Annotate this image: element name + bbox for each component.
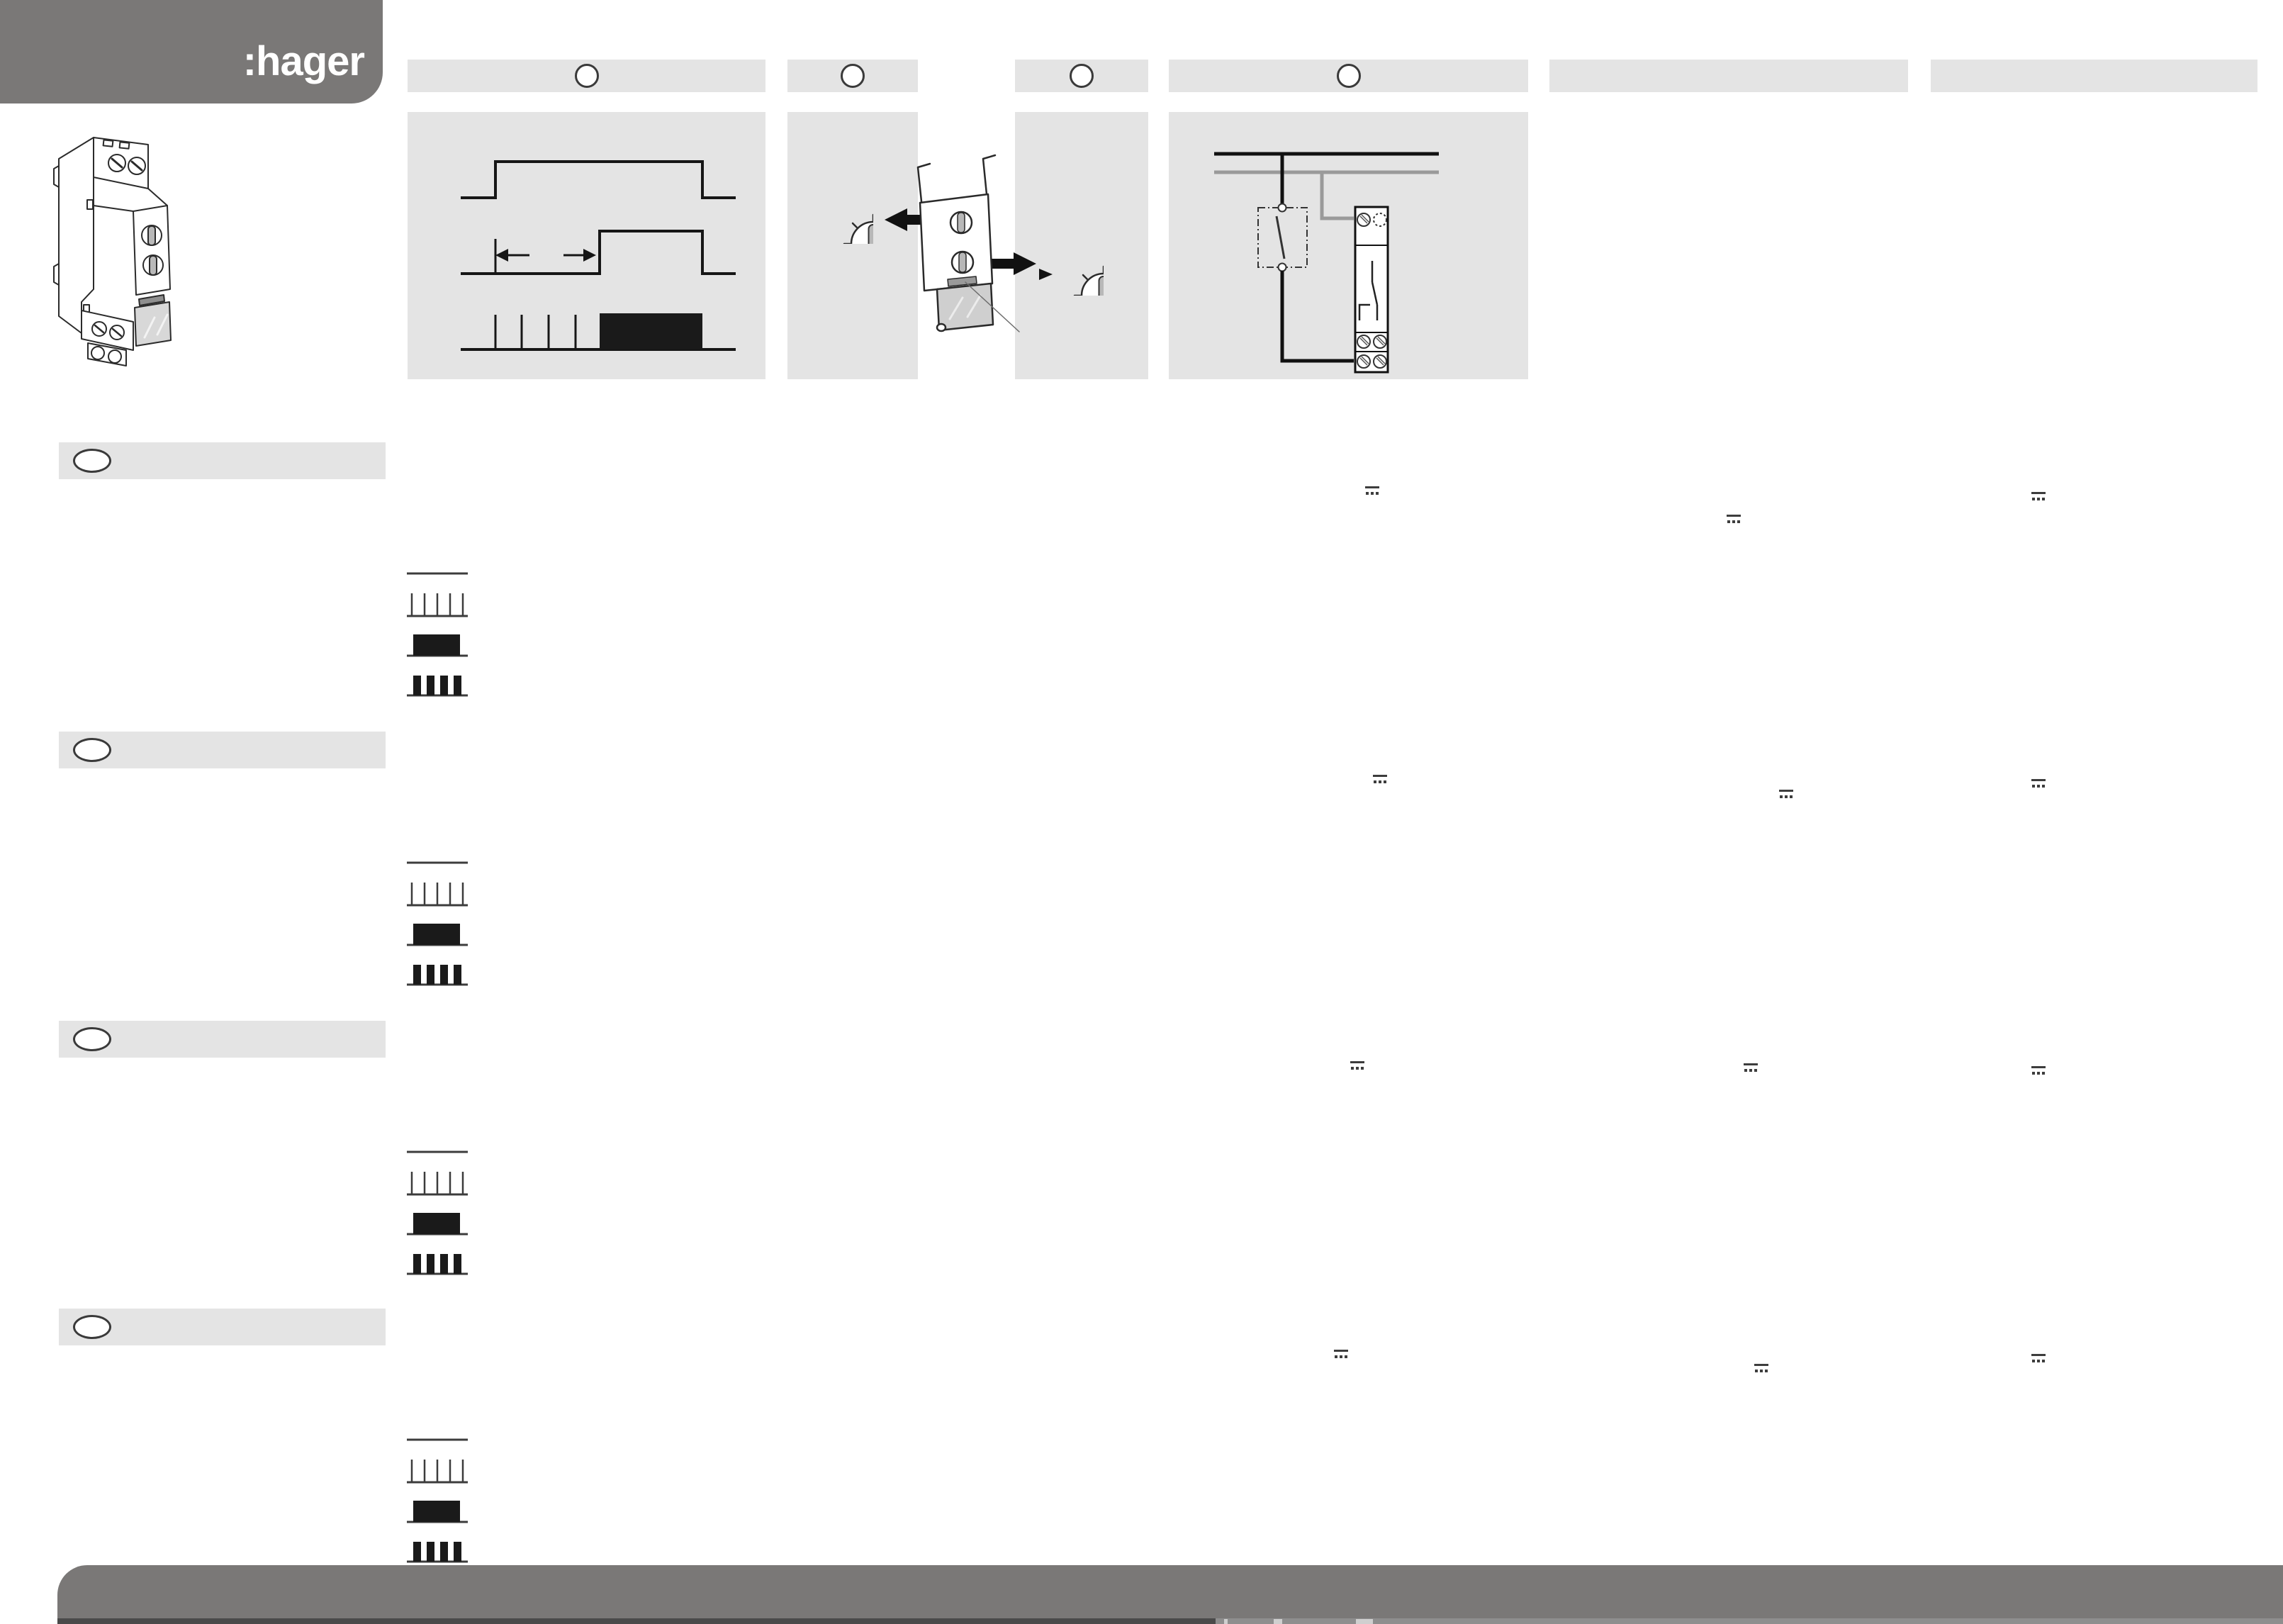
step-header-2 <box>787 60 918 92</box>
language-badge <box>73 1315 111 1339</box>
dim-arrow-right <box>583 249 596 262</box>
step-marker-circle <box>575 64 599 88</box>
hager-logo: :hager <box>243 41 364 82</box>
footer-mark <box>1356 1619 1373 1624</box>
section-header-bar <box>59 1309 386 1345</box>
timing-diagrams <box>408 112 765 379</box>
footer-bar <box>57 1565 2283 1624</box>
section-header-bar <box>59 442 386 479</box>
language-section-4 <box>59 1309 555 1571</box>
dc-voltage-symbol <box>1365 486 1379 495</box>
dc-voltage-symbol <box>1373 775 1387 784</box>
step-header-6 <box>1931 60 2257 92</box>
rotary-dial-left <box>808 179 873 244</box>
language-section-3 <box>59 1021 555 1283</box>
rotary-dial-right <box>1038 230 1104 296</box>
dc-voltage-symbol <box>1727 515 1741 524</box>
step-header-1 <box>408 60 765 92</box>
language-badge <box>73 738 111 762</box>
switched-wire <box>1282 271 1354 361</box>
footer-mark <box>1274 1619 1282 1624</box>
footer-strip-light <box>1216 1618 2283 1624</box>
step-header-4 <box>1169 60 1528 92</box>
dc-voltage-symbol <box>1744 1063 1758 1073</box>
timing-diagrams-panel <box>408 112 765 379</box>
switch-blade <box>1277 216 1284 259</box>
instruction-sheet: :hager <box>0 0 2283 1624</box>
dc-voltage-symbol <box>1334 1350 1348 1359</box>
footer-mark <box>1224 1619 1228 1624</box>
section-header-bar <box>59 732 386 768</box>
neutral-wire <box>1322 172 1354 218</box>
module-front-illustration <box>879 149 1042 354</box>
step-header-5 <box>1549 60 1908 92</box>
function-pictograms <box>406 1438 469 1563</box>
footer-strip-dark <box>57 1618 1216 1624</box>
function-pictograms <box>406 572 469 697</box>
step-marker-circle <box>841 64 865 88</box>
dc-voltage-symbol <box>1754 1364 1768 1373</box>
language-section-1 <box>59 442 555 705</box>
product-illustration <box>48 122 204 370</box>
language-badge <box>73 1027 111 1051</box>
language-badge <box>73 449 111 473</box>
dc-voltage-symbol <box>2031 1354 2046 1363</box>
step-header-3 <box>1015 60 1148 92</box>
dc-voltage-symbol <box>1350 1061 1364 1070</box>
dc-voltage-symbol <box>2031 779 2046 788</box>
dc-voltage-symbol <box>2031 492 2046 501</box>
function-pictograms <box>406 1150 469 1275</box>
step-marker-circle <box>1337 64 1361 88</box>
wiring-diagram <box>1169 112 1528 379</box>
dim-arrow-left <box>495 249 508 262</box>
section-header-bar <box>59 1021 386 1058</box>
dc-voltage-symbol <box>1779 790 1793 799</box>
dc-voltage-symbol <box>2031 1066 2046 1075</box>
function-pictograms <box>406 861 469 986</box>
output-on-block <box>600 313 702 349</box>
brand-header: :hager <box>0 0 383 103</box>
step-marker-circle <box>1070 64 1094 88</box>
pushbutton-box <box>1258 208 1307 267</box>
wiring-diagram-panel <box>1169 112 1528 379</box>
language-section-2 <box>59 732 555 994</box>
